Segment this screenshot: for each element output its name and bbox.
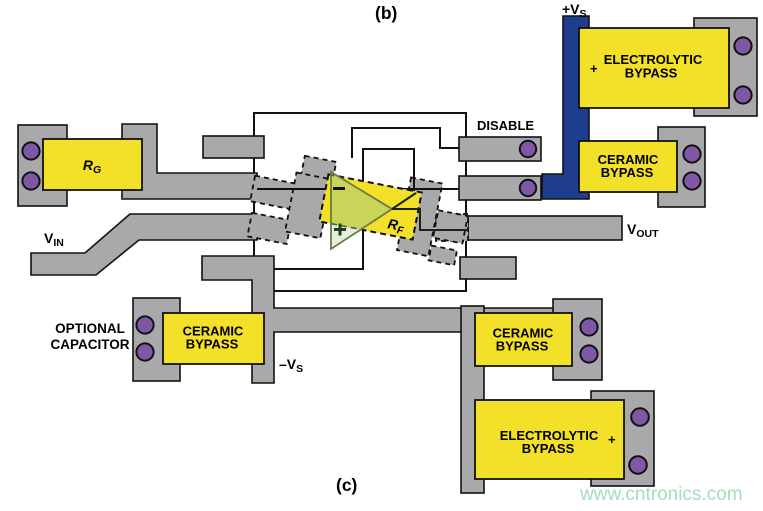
svg-text:+: +: [608, 432, 616, 447]
svg-text:BYPASS: BYPASS: [186, 337, 239, 352]
svg-text:OPTIONAL: OPTIONAL: [55, 321, 125, 336]
svg-text:BYPASS: BYPASS: [625, 66, 678, 81]
svg-text:BYPASS: BYPASS: [522, 441, 575, 456]
svg-text:–VS: –VS: [279, 356, 303, 375]
svg-text:(b): (b): [375, 3, 397, 23]
svg-text:www.cntronics.com: www.cntronics.com: [579, 484, 743, 505]
svg-text:CAPACITOR: CAPACITOR: [50, 337, 129, 352]
svg-text:+: +: [590, 61, 598, 76]
svg-text:DISABLE: DISABLE: [477, 118, 534, 133]
svg-text:VIN: VIN: [44, 230, 64, 249]
svg-text:VOUT: VOUT: [627, 221, 659, 240]
svg-text:(c): (c): [336, 475, 357, 495]
svg-text:BYPASS: BYPASS: [496, 339, 549, 354]
svg-text:BYPASS: BYPASS: [601, 165, 654, 180]
